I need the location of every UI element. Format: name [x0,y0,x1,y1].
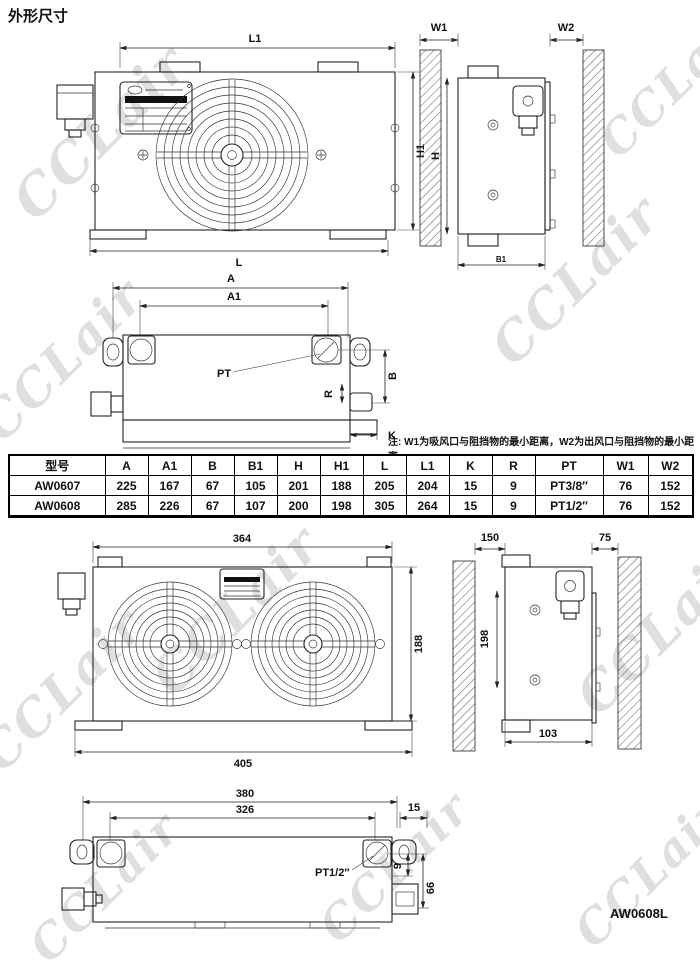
col-header: L [363,455,406,476]
col-header: H1 [320,455,363,476]
aw0607-top-view: A A1 PT B R K [55,272,445,450]
oil-port [128,336,155,364]
dim-b-label: B [387,372,399,380]
oil-port [363,840,391,867]
cell: 205 [363,476,406,496]
oil-port [312,336,341,364]
din-connector-icon [513,86,543,135]
screw-icon [316,150,326,160]
cell: 15 [449,476,492,496]
col-header: H [277,455,320,476]
dim-364-label: 364 [233,533,252,545]
din-connector-icon [58,573,85,615]
outlet-port [350,393,372,411]
din-connector-icon [91,392,123,416]
wall-hatch [453,561,475,751]
cooler-body [123,335,350,420]
cell: PT3/8″ [535,476,603,496]
cooler-body [93,837,392,922]
screw-icon [488,190,498,200]
col-header: W2 [648,455,693,476]
cell: 188 [320,476,363,496]
cell: 107 [234,496,277,517]
cell: 76 [603,496,648,517]
cell: 105 [234,476,277,496]
screw-icon [530,605,540,615]
table-row: AW0607 225 167 67 105 201 188 205 204 15… [9,476,693,496]
cell: 152 [648,476,693,496]
screw-icon [138,150,148,160]
dim-a-label: A [227,273,235,285]
aw0607-front-view: L1 H1 L [55,28,430,280]
dim-l1-label: L1 [249,33,262,45]
table-header-row: 型号 A A1 B B1 H H1 L L1 K R PT W1 W2 [9,455,693,476]
fan-guard-icon [99,582,242,706]
din-connector-icon [556,571,584,619]
wall-hatch [420,50,441,246]
dimensions-table: 型号 A A1 B B1 H H1 L L1 K R PT W1 W2 AW06… [8,454,694,518]
cooler-body [458,78,545,234]
dim-9-label: 9 [392,863,404,869]
cell: 15 [449,496,492,517]
nameplate [220,569,264,599]
col-header: R [492,455,535,476]
cell: 67 [191,496,234,517]
screw-icon [530,675,540,685]
dim-405-label: 405 [234,758,252,770]
col-header: B1 [234,455,277,476]
oil-port [97,840,125,867]
col-header: W1 [603,455,648,476]
col-header: A [105,455,148,476]
col-header: PT [535,455,603,476]
dim-380-label: 380 [236,788,254,800]
cell: 285 [105,496,148,517]
cell: 226 [148,496,191,517]
dim-188-label: 188 [413,635,425,653]
cell: 225 [105,476,148,496]
dim-66-label: 66 [425,882,437,894]
cooler-body [505,567,592,720]
screw-icon [488,120,498,130]
aw0607-side-view: W1 W2 H B1 [413,20,613,282]
dim-198-label: 198 [479,630,491,648]
dim-w1-label: W1 [431,22,448,34]
dim-l-label: L [236,257,243,269]
watermark: CCLair [564,786,700,958]
cell: 201 [277,476,320,496]
cell: 152 [648,496,693,517]
wall-hatch [618,557,641,749]
cell: 9 [492,496,535,517]
cell: 198 [320,496,363,517]
cell: 76 [603,476,648,496]
col-header: A1 [148,455,191,476]
dim-150-label: 150 [481,532,499,544]
col-header: L1 [406,455,449,476]
dim-h-label: H [430,152,442,160]
cell: 204 [406,476,449,496]
dim-326-label: 326 [236,804,254,816]
table-row: AW0608 285 226 67 107 200 198 305 264 15… [9,496,693,517]
cell: 67 [191,476,234,496]
dim-103-label: 103 [539,728,557,740]
cell: AW0607 [9,476,105,496]
aw0608l-side-view: 150 75 198 103 [450,533,700,783]
col-header: K [449,455,492,476]
aw0608l-front-view: 364 188 405 [55,533,470,785]
dim-b1-label: B1 [496,255,507,264]
wall-hatch [583,50,604,246]
model-label: AW0608L [610,906,668,921]
port-pt-label: PT1/2″ [315,867,350,879]
dim-w2-label: W2 [558,22,575,34]
page-title: 外形尺寸 [8,5,68,26]
dim-15-label: 15 [408,802,420,814]
col-header: B [191,455,234,476]
dim-a1-label: A1 [227,291,241,303]
cell: 305 [363,496,406,517]
dim-75-label: 75 [599,532,611,544]
cell: PT1/2″ [535,496,603,517]
cell: 200 [277,496,320,517]
col-header: 型号 [9,455,105,476]
cell: 9 [492,476,535,496]
dim-r-label: R [323,390,335,398]
din-connector-icon [62,888,102,910]
cell: 264 [406,496,449,517]
cell: AW0608 [9,496,105,517]
nameplate [120,82,192,134]
aw0608l-bottom-view: 380 326 15 PT1/2″ 9 66 [55,788,480,940]
port-pt-label: PT [217,368,231,380]
cell: 167 [148,476,191,496]
fan-guard-icon [242,582,385,706]
din-connector-icon [57,85,93,137]
